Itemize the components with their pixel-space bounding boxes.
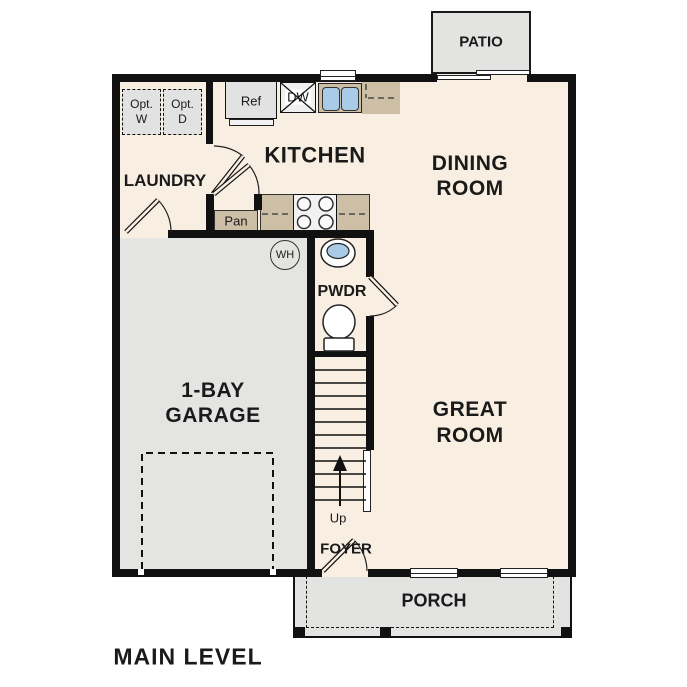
room-label-laundry: LAUNDRY (124, 171, 206, 191)
sliding-door-panel (437, 75, 491, 80)
opt-dryer-line2: D (178, 112, 187, 126)
kitchen-counter (362, 82, 400, 114)
room-label-foyer: FOYER (320, 541, 372, 558)
wall-mid-horizontal (168, 230, 374, 238)
wall-powder-east-upper (366, 238, 374, 277)
wall-powder-east-lower (366, 316, 374, 357)
stair-handrail (363, 450, 371, 512)
porch-post (380, 627, 391, 638)
wall-stairs-east (366, 357, 374, 450)
dining-line1: DINING (432, 152, 509, 175)
room-label-porch: PORCH (401, 591, 466, 612)
floor-plan: DW Opt. W Opt. D WH (0, 0, 687, 687)
dishwasher-label: DW (285, 89, 311, 104)
kitchen-window (320, 70, 356, 81)
porch-post (561, 627, 572, 638)
refrigerator-label: Ref (241, 94, 261, 109)
garage-door-jamb (270, 569, 276, 575)
optional-dryer-box: Opt. D (163, 89, 202, 135)
room-label-powder: PWDR (318, 283, 367, 301)
wall-left (112, 74, 120, 577)
sliding-door-panel (476, 70, 530, 75)
dishwasher-symbol: DW (280, 82, 316, 113)
stove-symbol (293, 194, 337, 232)
wall-right (568, 74, 576, 577)
room-label-great-room: GREAT ROOM (433, 397, 507, 449)
opt-washer-line2: W (136, 112, 147, 126)
stairs-up-label: Up (330, 511, 347, 526)
pantry-label: Pan (224, 214, 247, 229)
room-label-dining: DINING ROOM (432, 151, 509, 201)
kitchen-sink (318, 83, 362, 113)
porch-post (294, 627, 305, 638)
water-heater-label: WH (276, 249, 294, 261)
garage-line2: GARAGE (165, 404, 260, 427)
wall-powder-south (315, 351, 366, 357)
room-label-patio: PATIO (459, 34, 503, 51)
room-label-kitchen: KITCHEN (264, 143, 365, 168)
front-door-opening (322, 569, 368, 577)
garage-door-jamb (138, 569, 144, 575)
sink-basin-left (322, 87, 340, 111)
sink-basin-right (341, 87, 359, 111)
garage-line1: 1-BAY (181, 379, 245, 402)
great-room-line1: GREAT (433, 398, 507, 421)
great-room-window (410, 568, 458, 578)
great-room-line2: ROOM (436, 424, 503, 447)
plan-title: MAIN LEVEL (113, 644, 262, 671)
opt-washer-line1: Opt. (130, 97, 153, 111)
refrigerator-door (229, 119, 274, 126)
optional-washer-box: Opt. W (122, 89, 161, 135)
water-heater-symbol: WH (270, 240, 300, 270)
wall-garage-east (307, 238, 315, 569)
room-label-garage: 1-BAY GARAGE (165, 378, 260, 428)
wall-pantry-east (254, 194, 262, 210)
opt-dryer-line1: Opt. (171, 97, 194, 111)
great-room-window (500, 568, 548, 578)
dining-line2: ROOM (436, 177, 503, 200)
wall-laundry-east (206, 82, 213, 144)
